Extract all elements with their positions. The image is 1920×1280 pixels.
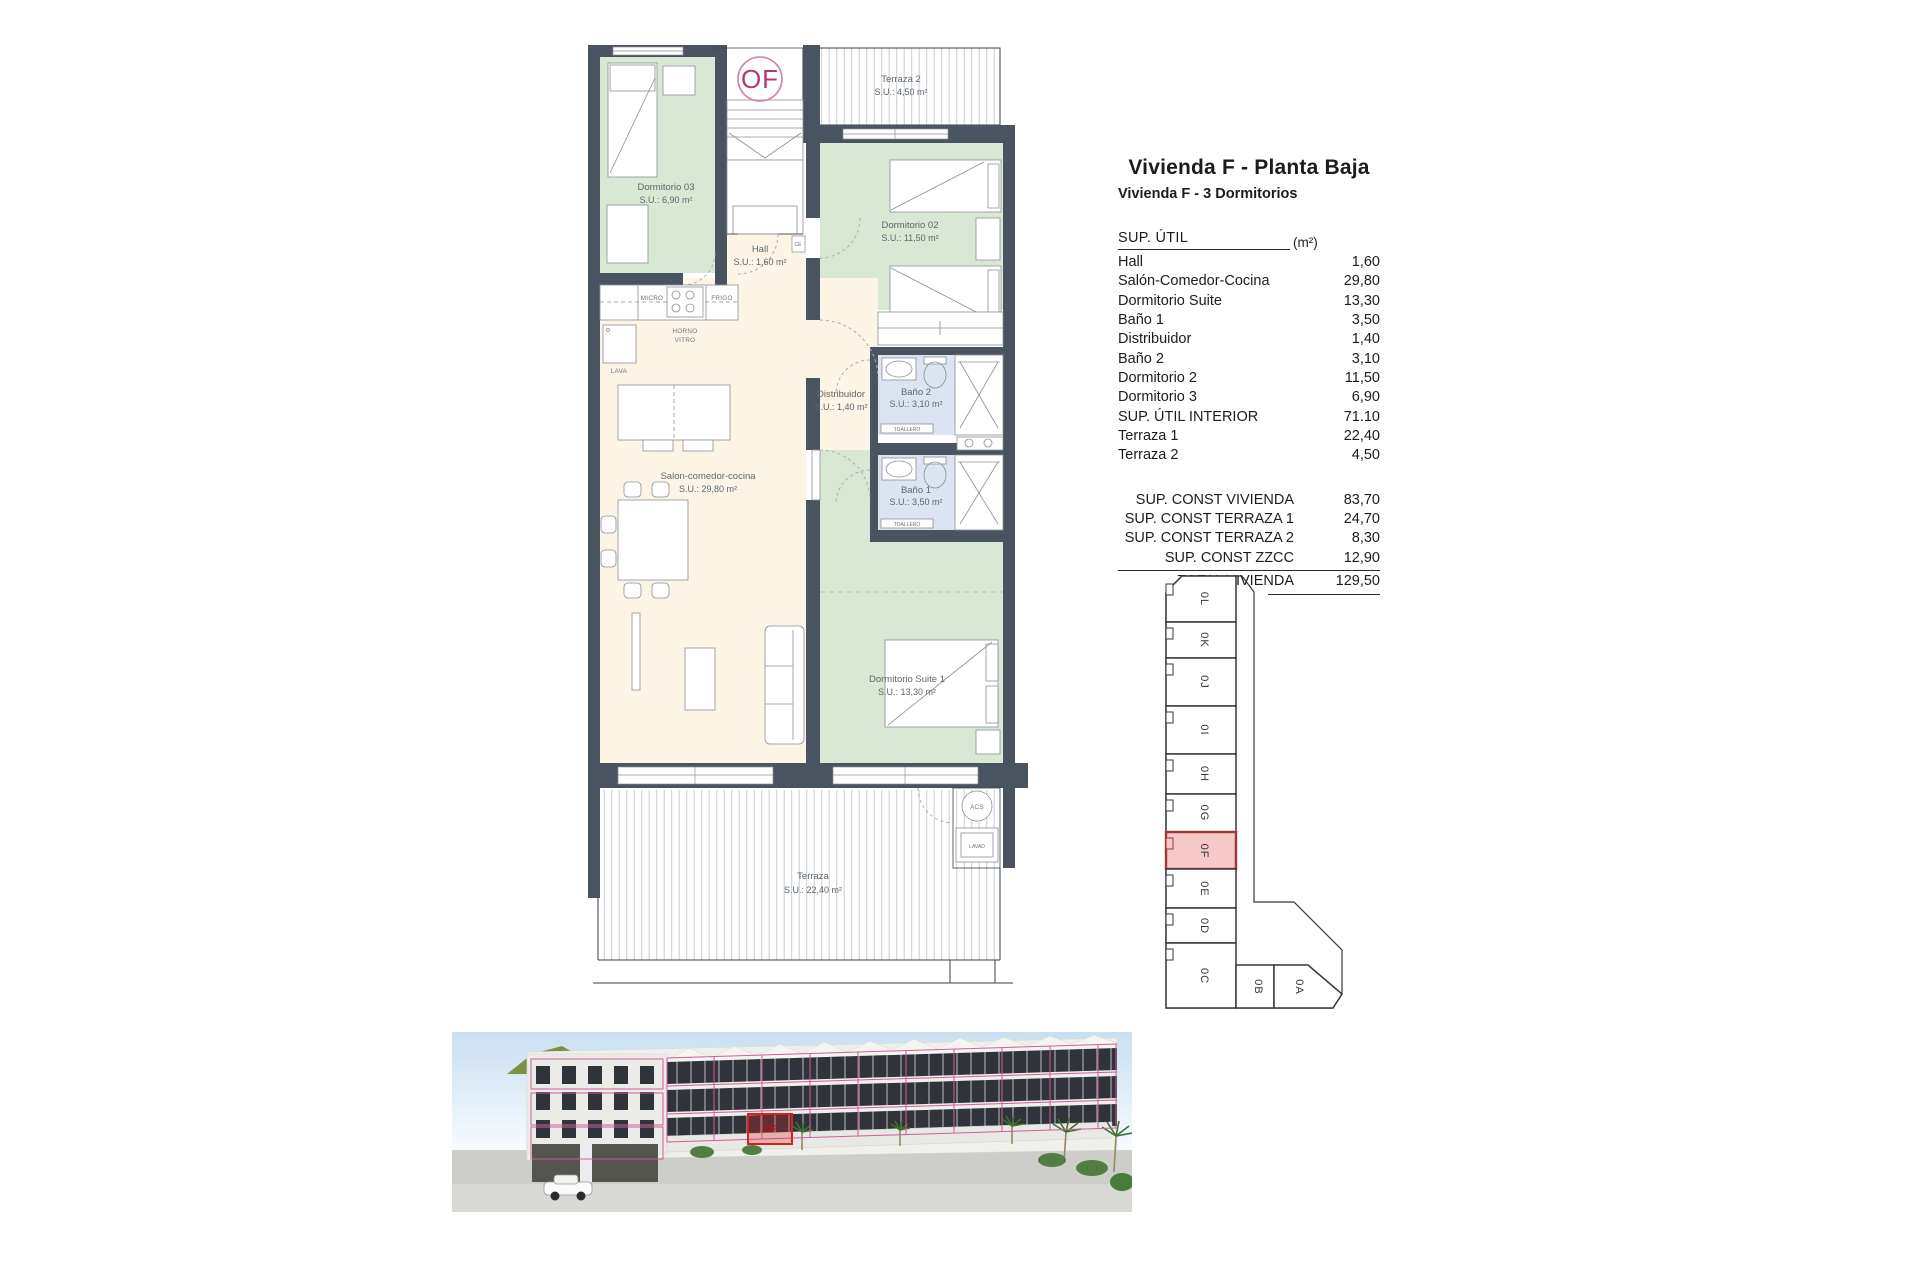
distribuidor-name: Distribuidor <box>817 389 865 400</box>
highlighted-unit-label: OF <box>764 1124 777 1134</box>
door-leaf <box>812 450 820 500</box>
bano1-area: S.U.: 3,50 m² <box>889 497 942 507</box>
distribuidor-area: S.U.: 1,40 m² <box>814 402 867 412</box>
ce-label: CE <box>795 242 803 248</box>
summary-row: SUP. CONST ZZCC12,90 <box>1118 549 1380 568</box>
closet <box>878 312 1003 345</box>
toallero1-label: TOALLERO <box>894 522 921 528</box>
table-row: Baño 13,50 <box>1118 311 1380 330</box>
page-subtitle: Vivienda F - 3 Dormitorios <box>1118 185 1380 203</box>
suite-area: S.U.: 13,30 m² <box>878 687 936 697</box>
unit-label-0E: 0E <box>1198 881 1210 896</box>
area-table-header-label: SUP. ÚTIL <box>1118 230 1290 250</box>
micro-label: MICRO <box>641 295 664 302</box>
table-row: Terraza 24,50 <box>1118 446 1380 465</box>
building-render: OF <box>452 1032 1132 1212</box>
table-row: Dormitorio 36,90 <box>1118 388 1380 407</box>
frigo-label: FRIGO <box>711 295 732 302</box>
dorm3-area: S.U.: 6,90 m² <box>639 195 692 205</box>
highlighted-unit-overlay: OF <box>748 1114 792 1144</box>
bano2-name: Baño 2 <box>901 387 931 398</box>
terraza1-area: S.U.: 22,40 m² <box>784 885 842 895</box>
unit-label-0A: 0A <box>1293 979 1305 994</box>
hall-area: S.U.: 1,60 m² <box>733 257 786 267</box>
dorm3-name: Dormitorio 03 <box>637 182 694 193</box>
summary-row: SUP. CONST VIVIENDA83,70 <box>1118 491 1380 510</box>
salon-name: Salon-comedor-cocina <box>660 471 756 482</box>
unit-label-0C: 0C <box>1198 968 1210 984</box>
area-table: SUP. ÚTIL (m²) Hall1,60 Salón-Comedor-Co… <box>1118 230 1380 595</box>
lavad-label: LAVAD <box>969 844 985 850</box>
unit-badge: OF <box>738 57 782 101</box>
unit-label-0H: 0H <box>1198 766 1210 782</box>
key-plan: 0L 0K 0J 0I 0H 0G 0F 0E 0D 0C 0B 0A <box>1156 570 1356 1015</box>
terraza2-area: S.U.: 4,50 m² <box>874 87 927 97</box>
unit-label-0G: 0G <box>1198 805 1210 822</box>
table-row: Dormitorio Suite13,30 <box>1118 292 1380 311</box>
table-row: Dormitorio 211,50 <box>1118 369 1380 388</box>
table-row: Baño 23,10 <box>1118 350 1380 369</box>
table-row: Distribuidor1,40 <box>1118 330 1380 349</box>
table-row: SUP. ÚTIL INTERIOR71.10 <box>1118 408 1380 427</box>
unit-label-0J: 0J <box>1198 675 1210 689</box>
floor-plan: OF MICRO FRIGO HORNO VITRO LAVA <box>588 38 1028 1003</box>
summary-row: SUP. CONST TERRAZA 124,70 <box>1118 510 1380 529</box>
terraza2-name: Terraza 2 <box>881 74 921 85</box>
unit-label-0B: 0B <box>1252 979 1264 994</box>
page-title: Vivienda F - Planta Baja <box>1118 156 1380 180</box>
info-panel: Vivienda F - Planta Baja Vivienda F - 3 … <box>1118 156 1380 595</box>
table-row: Terraza 122,40 <box>1118 427 1380 446</box>
bano1-name: Baño 1 <box>901 485 931 496</box>
dorm2-area: S.U.: 11,50 m² <box>881 233 938 243</box>
area-table-header: SUP. ÚTIL (m²) <box>1118 230 1380 250</box>
toallero2-label: TOALLERO <box>894 427 921 433</box>
hall-name: Hall <box>752 244 768 255</box>
summary-row: SUP. CONST TERRAZA 28,30 <box>1118 529 1380 548</box>
bano2-area: S.U.: 3,10 m² <box>889 399 942 409</box>
horno-label: HORNO <box>673 328 698 335</box>
unit-label-0L: 0L <box>1198 592 1210 606</box>
acs-label: ACS <box>970 804 984 811</box>
vitro-label: VITRO <box>675 337 696 344</box>
garage-opening <box>532 1144 658 1182</box>
unit-label-0D: 0D <box>1198 918 1210 934</box>
unit-label-0K: 0K <box>1198 632 1210 647</box>
area-table-rows: Hall1,60 Salón-Comedor-Cocina29,80 Dormi… <box>1118 253 1380 466</box>
salon-area: S.U.: 29,80 m² <box>679 484 737 494</box>
area-table-header-unit: (m²) <box>1293 235 1318 250</box>
table-row: Salón-Comedor-Cocina29,80 <box>1118 272 1380 291</box>
unit-badge-label: OF <box>741 64 779 94</box>
lava-label: LAVA <box>611 368 628 375</box>
table-row: Hall1,60 <box>1118 253 1380 272</box>
suite-name: Dormitorio Suite 1 <box>869 674 945 685</box>
terraza1-name: Terraza <box>797 871 829 882</box>
unit-label-0I: 0I <box>1198 724 1210 735</box>
dorm2-name: Dormitorio 02 <box>881 220 938 231</box>
unit-cell-0A <box>1274 965 1342 1008</box>
unit-label-0F: 0F <box>1198 844 1210 859</box>
pillar <box>580 1144 592 1182</box>
